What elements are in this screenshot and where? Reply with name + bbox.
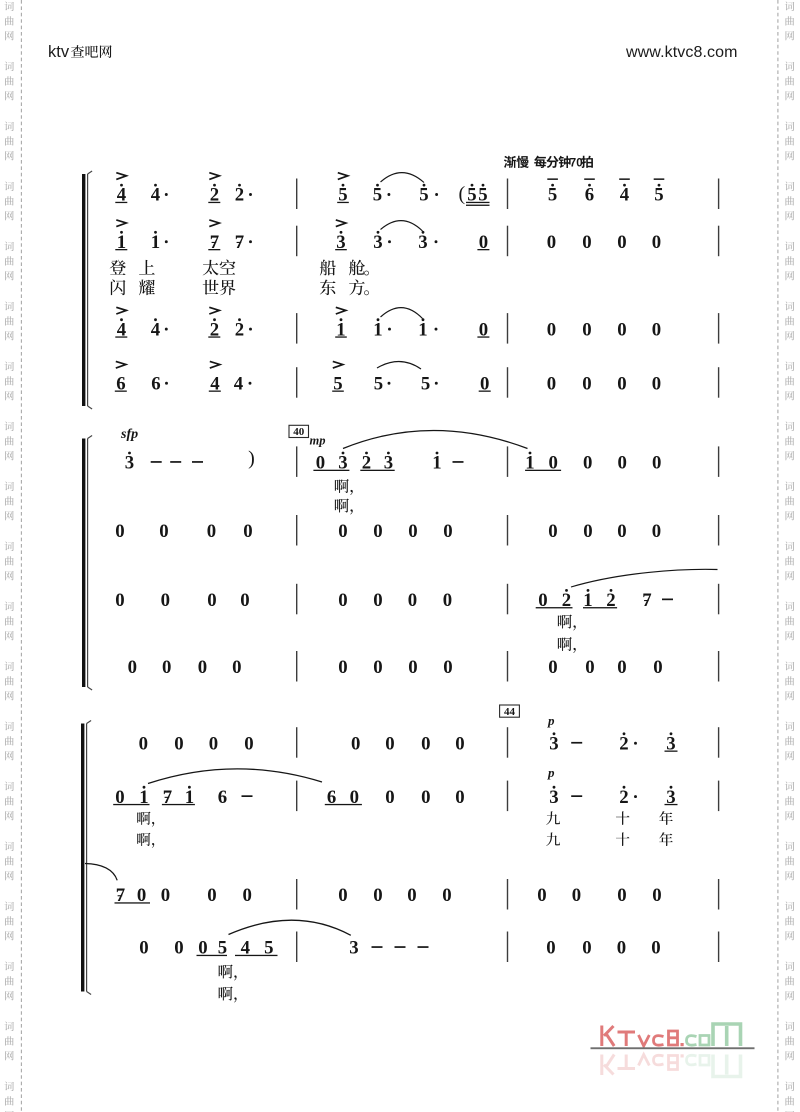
svg-text:0: 0	[652, 319, 661, 340]
svg-text:0: 0	[198, 657, 207, 678]
svg-text:0: 0	[572, 885, 581, 906]
svg-text:0: 0	[653, 657, 662, 678]
svg-text:0: 0	[617, 657, 626, 678]
svg-text:0: 0	[617, 232, 626, 253]
svg-text:0: 0	[162, 657, 171, 678]
svg-text:3: 3	[373, 232, 382, 253]
svg-text:mp: mp	[310, 434, 326, 448]
svg-text:1: 1	[418, 319, 427, 340]
svg-text:sfp: sfp	[120, 427, 138, 442]
svg-text:0: 0	[207, 521, 216, 542]
svg-text:0: 0	[421, 733, 430, 754]
svg-text:3: 3	[418, 232, 427, 253]
svg-text:3: 3	[549, 733, 558, 754]
svg-text:0: 0	[338, 521, 347, 542]
svg-text:0: 0	[408, 657, 417, 678]
svg-text:0: 0	[385, 733, 394, 754]
svg-text:0: 0	[652, 232, 661, 253]
svg-text:0: 0	[174, 733, 183, 754]
svg-text:0: 0	[338, 590, 347, 611]
svg-text:0: 0	[207, 885, 216, 906]
svg-text:4: 4	[151, 185, 161, 206]
svg-text:0: 0	[583, 521, 592, 542]
svg-text:0: 0	[139, 733, 148, 754]
svg-text:0: 0	[174, 938, 183, 959]
svg-text:0: 0	[115, 590, 124, 611]
svg-text:0: 0	[548, 657, 557, 678]
svg-text:2: 2	[619, 733, 628, 754]
svg-text:0: 0	[651, 938, 660, 959]
svg-text:0: 0	[585, 657, 594, 678]
svg-text:3: 3	[549, 787, 558, 808]
svg-text:70: 70	[570, 158, 583, 170]
svg-text:0: 0	[617, 373, 626, 394]
svg-text:0: 0	[617, 885, 626, 906]
svg-text:www.ktvc8.com: www.ktvc8.com	[625, 44, 738, 61]
svg-text:4: 4	[234, 373, 244, 394]
svg-text:6: 6	[218, 787, 227, 808]
svg-text:0: 0	[652, 453, 661, 474]
svg-text:0: 0	[244, 733, 253, 754]
svg-text:5: 5	[419, 185, 428, 206]
svg-text:5: 5	[421, 373, 430, 394]
svg-text:5: 5	[374, 373, 383, 394]
svg-text:0: 0	[617, 319, 626, 340]
svg-text:0: 0	[652, 373, 661, 394]
svg-text:0: 0	[652, 885, 661, 906]
svg-text:0: 0	[455, 733, 464, 754]
svg-text:5: 5	[548, 185, 557, 206]
svg-text:3: 3	[125, 453, 134, 474]
svg-text:0: 0	[408, 521, 417, 542]
svg-text:0: 0	[373, 590, 382, 611]
svg-text:4: 4	[151, 319, 161, 340]
svg-text:0: 0	[373, 885, 382, 906]
svg-text:0: 0	[161, 590, 170, 611]
svg-text:0: 0	[338, 657, 347, 678]
svg-text:0: 0	[582, 319, 591, 340]
svg-text:0: 0	[443, 590, 452, 611]
svg-text:0: 0	[408, 590, 417, 611]
svg-text:0: 0	[232, 657, 241, 678]
svg-text:0: 0	[537, 885, 546, 906]
svg-text:1: 1	[373, 319, 382, 340]
svg-text:0: 0	[139, 938, 148, 959]
svg-text:0: 0	[617, 938, 626, 959]
svg-text:4: 4	[620, 185, 630, 206]
svg-text:0: 0	[442, 885, 451, 906]
svg-text:0: 0	[161, 885, 170, 906]
svg-text:): )	[248, 447, 255, 469]
svg-text:0: 0	[443, 657, 452, 678]
svg-text:5: 5	[373, 185, 382, 206]
svg-text:0: 0	[455, 787, 464, 808]
svg-text:0: 0	[617, 521, 626, 542]
svg-text:1: 1	[151, 232, 160, 253]
svg-text:6: 6	[151, 373, 160, 394]
svg-text:0: 0	[159, 521, 168, 542]
svg-text:(: (	[458, 183, 465, 205]
svg-text:0: 0	[243, 521, 252, 542]
svg-text:0: 0	[548, 521, 557, 542]
svg-text:0: 0	[618, 453, 627, 474]
svg-text:0: 0	[582, 938, 591, 959]
svg-text:5: 5	[654, 185, 663, 206]
svg-text:0: 0	[583, 453, 592, 474]
svg-text:0: 0	[338, 885, 347, 906]
svg-text:0: 0	[351, 733, 360, 754]
svg-text:0: 0	[128, 657, 137, 678]
svg-text:0: 0	[547, 373, 556, 394]
svg-text:0: 0	[240, 590, 249, 611]
svg-text:0: 0	[547, 319, 556, 340]
svg-text:0: 0	[207, 590, 216, 611]
svg-text:1: 1	[432, 453, 441, 474]
svg-text:44: 44	[504, 706, 516, 718]
svg-text:2: 2	[235, 185, 244, 206]
svg-text:0: 0	[373, 657, 382, 678]
svg-text:p: p	[547, 765, 555, 780]
svg-text:3: 3	[349, 938, 358, 959]
svg-text:0: 0	[373, 521, 382, 542]
svg-text:0: 0	[243, 885, 252, 906]
svg-text:0: 0	[547, 232, 556, 253]
svg-text:2: 2	[235, 319, 244, 340]
svg-text:ktv: ktv	[48, 43, 70, 61]
svg-text:0: 0	[115, 521, 124, 542]
svg-text:6: 6	[585, 185, 594, 206]
svg-text:0: 0	[407, 885, 416, 906]
svg-text:0: 0	[385, 787, 394, 808]
svg-text:0: 0	[546, 938, 555, 959]
svg-text:0: 0	[652, 521, 661, 542]
svg-text:0: 0	[209, 733, 218, 754]
svg-text:40: 40	[293, 426, 305, 438]
svg-text:p: p	[547, 713, 555, 728]
svg-text:0: 0	[421, 787, 430, 808]
svg-text:2: 2	[619, 787, 628, 808]
svg-text:0: 0	[443, 521, 452, 542]
svg-text:0: 0	[582, 373, 591, 394]
svg-text:0: 0	[582, 232, 591, 253]
